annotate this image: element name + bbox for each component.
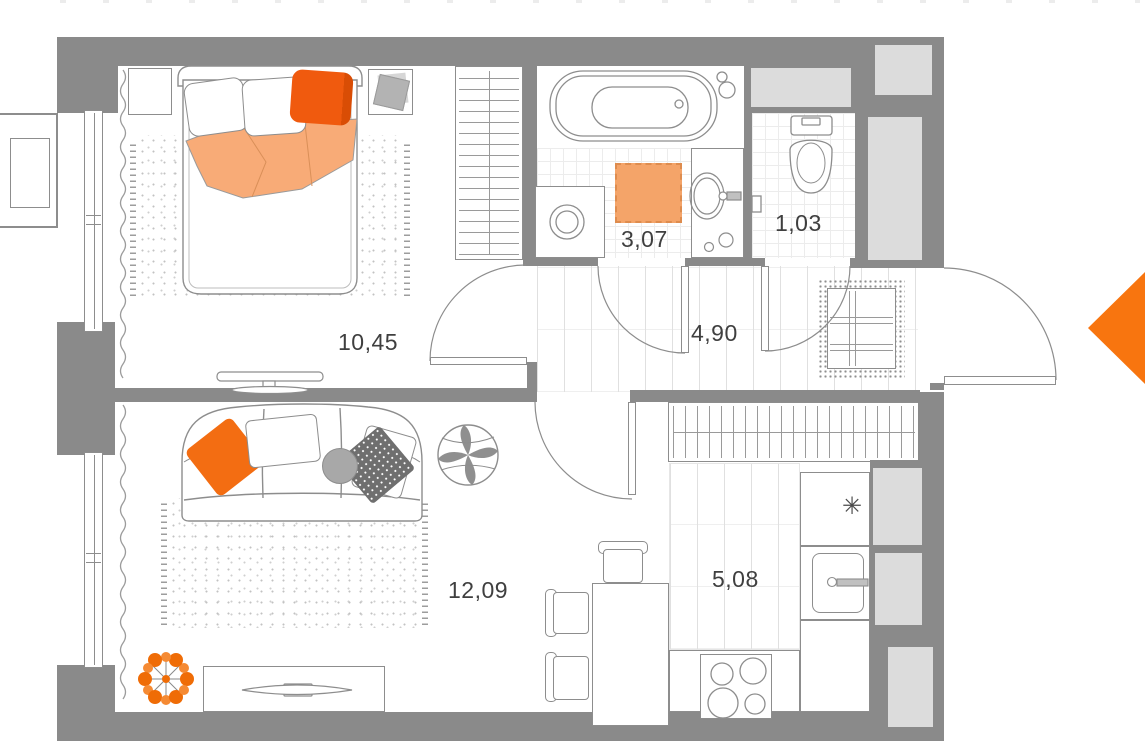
hallway-area-label: 4,90 — [691, 320, 738, 347]
washing-machine-drum — [550, 205, 584, 239]
bedroom-tv — [217, 372, 323, 394]
plant — [138, 652, 194, 705]
line-art-layer — [0, 0, 1147, 741]
bathroom-sink — [690, 173, 741, 252]
bathtub — [550, 71, 735, 141]
toilet-door-arc — [765, 266, 850, 351]
floor-plan-canvas: 10,45 3,07 1,03 4,90 12,09 5,08 ✳ — [0, 0, 1147, 741]
bed-pillow-orange — [289, 69, 354, 126]
living-room-tv — [242, 684, 352, 696]
bedroom-door-arc — [430, 265, 526, 361]
door-arcs — [430, 265, 1056, 499]
living-room-area-label: 12,09 — [448, 577, 508, 604]
fridge-snowflake-icon: ✳ — [842, 495, 862, 519]
bathroom-door-arc — [598, 266, 685, 353]
stove-burners — [708, 658, 766, 718]
sofa-pillow-white-1 — [245, 413, 322, 468]
kitchen-area-label: 5,08 — [712, 566, 759, 593]
toilet-area-label: 1,03 — [775, 210, 822, 237]
curtains — [121, 70, 126, 699]
bedroom-curtain — [121, 70, 126, 378]
bed-pillow-white-1 — [183, 76, 250, 138]
entrance-arrow-icon — [1088, 272, 1145, 384]
sofa-cushion-round — [322, 448, 358, 484]
bathroom-area-label: 3,07 — [621, 226, 668, 253]
living-room-door-arc — [535, 402, 632, 499]
ball — [438, 425, 498, 485]
kitchen-faucet — [828, 578, 869, 587]
toilet-fixture — [752, 116, 832, 212]
living-room-curtain — [121, 405, 126, 699]
entrance-door-arc — [944, 268, 1056, 380]
bedroom-area-label: 10,45 — [338, 329, 398, 356]
